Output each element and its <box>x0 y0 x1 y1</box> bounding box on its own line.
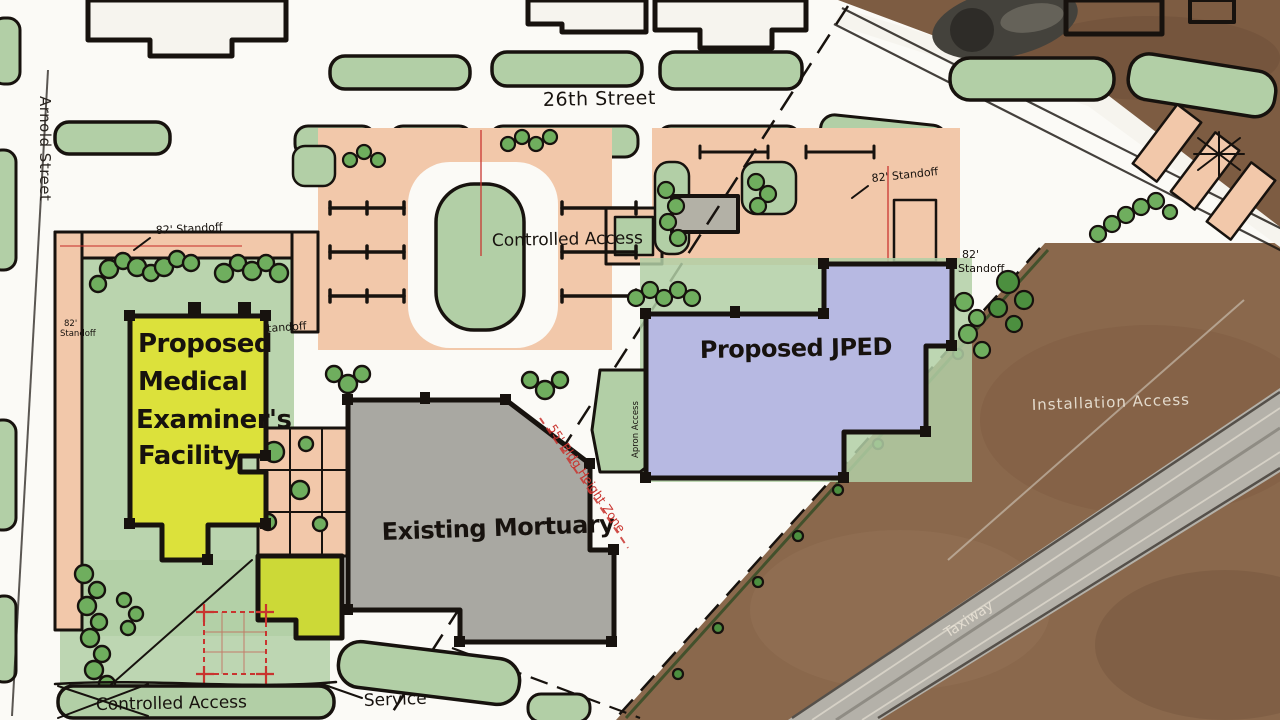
top-buildings <box>88 0 806 56</box>
street-arnold: Arnold Street <box>0 18 54 716</box>
standoff-label-east-edge: 82' Standoff <box>958 248 1005 275</box>
lawn-strip <box>0 150 16 270</box>
lawn-strip <box>0 596 16 682</box>
loop-road <box>55 232 318 258</box>
lawn-strip <box>528 694 590 720</box>
svg-text:Standoff: Standoff <box>958 262 1005 275</box>
building-outline <box>88 0 286 56</box>
courtyard <box>258 428 350 556</box>
svg-text:82': 82' <box>962 248 979 261</box>
tree-cluster <box>326 366 568 399</box>
lawn-strip <box>950 58 1114 100</box>
me-facility-label-line4: Facility <box>138 441 240 471</box>
street-26th-label: 26th Street <box>543 87 656 111</box>
parking-stub <box>894 200 936 262</box>
lawn-strip <box>330 56 470 89</box>
controlled-access-label-bottom: Controlled Access <box>96 692 247 715</box>
me-facility-label-line2: Medical <box>138 367 247 397</box>
apron-access-label: Apron Access <box>631 401 641 458</box>
lawn-strip <box>0 420 16 530</box>
lawn-strip <box>0 18 20 84</box>
loop-road <box>292 232 318 332</box>
svg-text:82': 82' <box>64 319 77 329</box>
jped-label: Proposed JPED <box>700 333 892 364</box>
controlled-access-label-top: Controlled Access <box>492 228 643 251</box>
me-facility-label-line1: Proposed <box>138 329 272 359</box>
parking-island <box>293 146 335 186</box>
arnold-street-label: Arnold Street <box>36 96 54 201</box>
lawn-strip <box>55 122 170 154</box>
lawn-strip <box>660 52 802 89</box>
building-outline <box>655 0 806 48</box>
jped-area: Apron Access Proposed JPED 82' Standoff <box>592 248 1005 483</box>
building-outline <box>528 0 646 32</box>
site-plan-canvas: Taxiway Installation Access <box>0 0 1280 720</box>
me-facility-label-line3: Examiner's <box>136 405 292 435</box>
lawn-strip <box>492 52 642 86</box>
service-label: Service <box>363 689 427 711</box>
mortuary-area: Existing Mortuary 55' Bldg Height Zone <box>342 392 628 647</box>
svg-text:Standoff: Standoff <box>60 329 97 339</box>
site-plan-drawing: Taxiway Installation Access <box>0 0 1280 720</box>
tree-cluster <box>1090 193 1177 242</box>
center-island <box>436 184 524 330</box>
